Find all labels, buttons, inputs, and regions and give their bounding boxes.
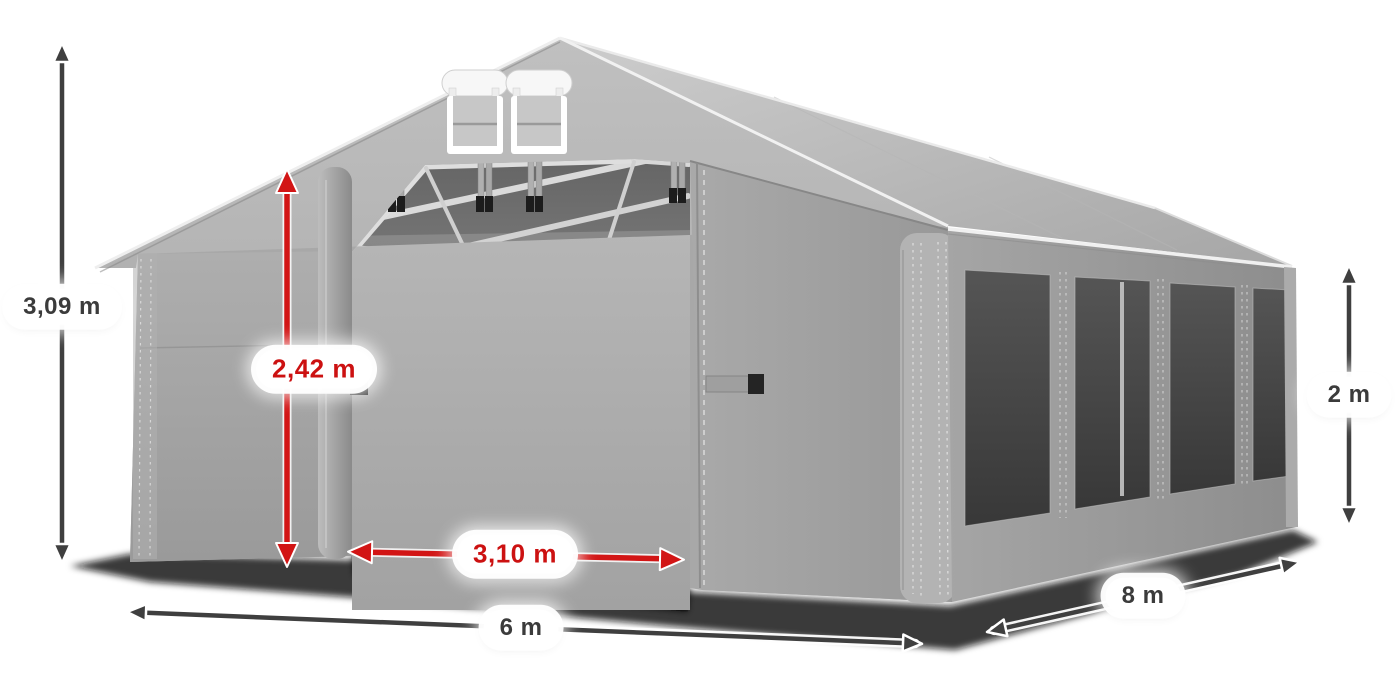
- dimension-label-entrance-width: 3,10 m: [457, 535, 573, 574]
- dimension-label-entrance-height: 2,42 m: [256, 350, 372, 389]
- corner-pillar-left: [133, 253, 157, 559]
- vent-mesh: [453, 96, 497, 146]
- side-window: [965, 270, 1050, 526]
- side-window: [1075, 277, 1150, 509]
- dimension-label-side-length: 8 m: [1106, 578, 1181, 614]
- far-corner-pillar: [1284, 267, 1298, 527]
- side-window: [1170, 283, 1235, 494]
- door-strap: [706, 376, 750, 392]
- dimension-label-side-wall-height: 2 m: [1312, 377, 1387, 413]
- tent-dimension-diagram: 3,09 m 2,42 m 3,10 m 6 m 8 m 2 m: [0, 0, 1400, 700]
- gable-vent: [442, 70, 508, 154]
- gable-vent: [506, 70, 572, 154]
- dimension-label-total-height: 3,09 m: [7, 289, 117, 325]
- dimension-label-front-width: 6 m: [484, 610, 559, 646]
- vent-mesh: [517, 96, 561, 146]
- corner-pillar-right: [900, 233, 956, 603]
- door-buckle: [748, 374, 764, 394]
- tent-illustration: [0, 0, 1400, 700]
